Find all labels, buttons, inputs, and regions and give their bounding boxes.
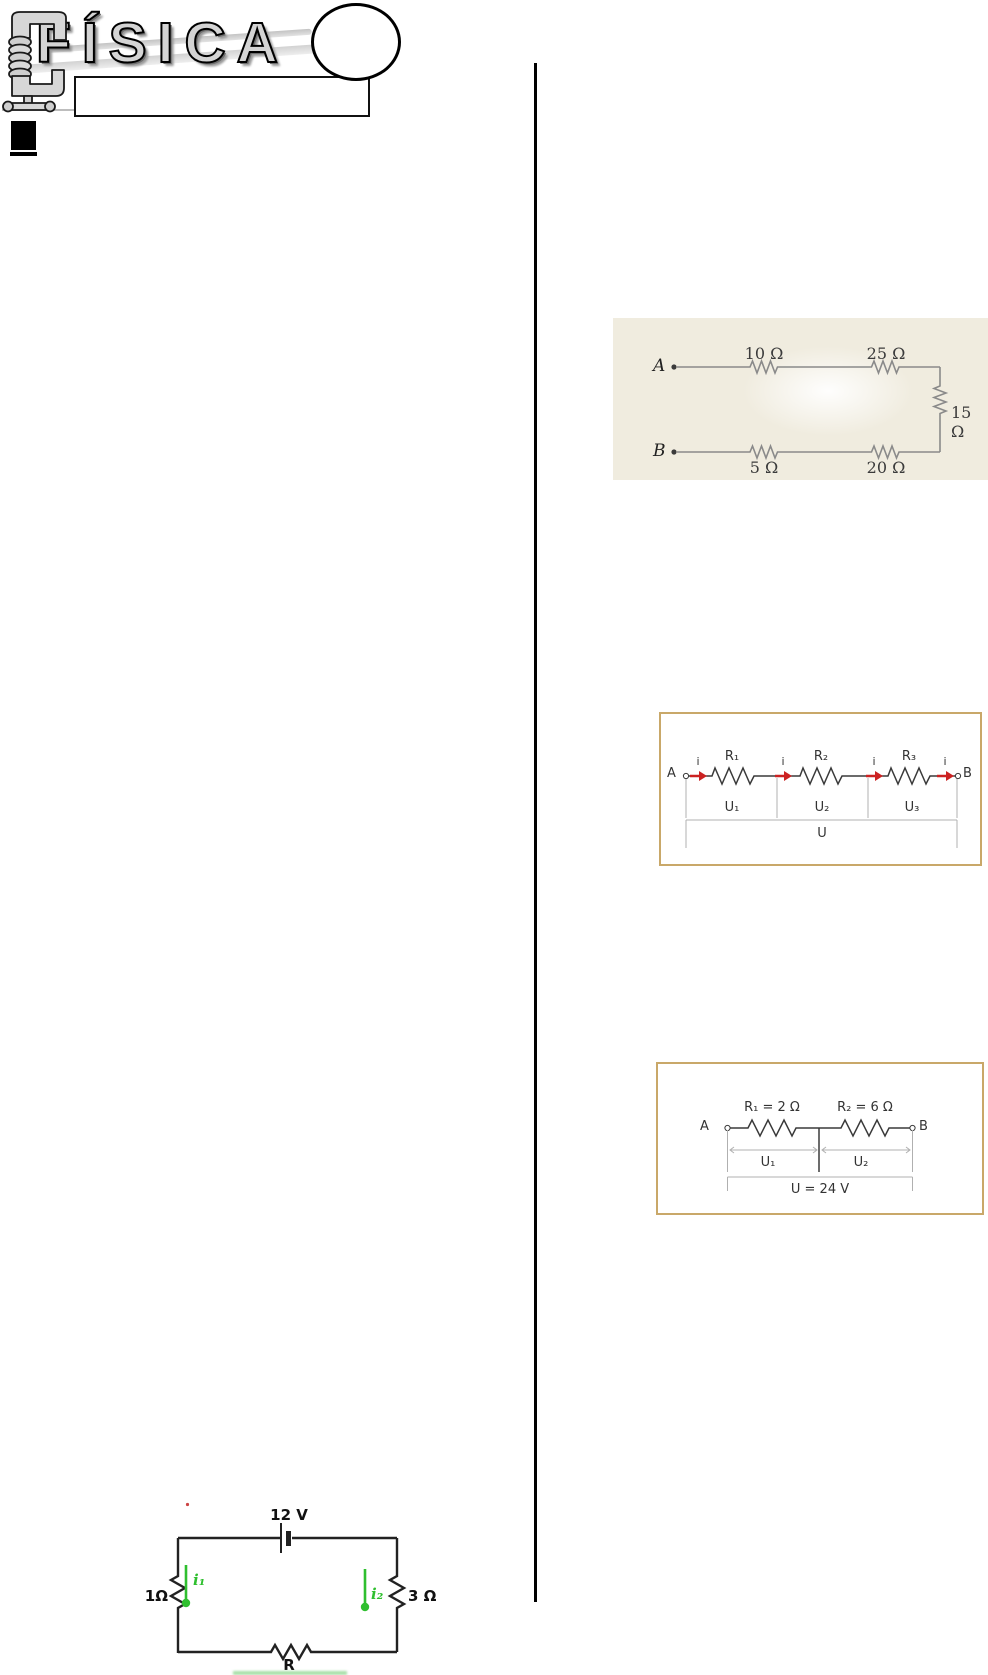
resistor-value-label: 25 Ω bbox=[846, 344, 926, 363]
resistor-value-label: 5 Ω bbox=[724, 458, 804, 477]
circuit-parallel-figure: A B 10 Ω 25 Ω 15 Ω 5 Ω 20 Ω bbox=[613, 318, 988, 480]
circuit-battery-figure: 12 V 1Ω 3 Ω i₁ i₂ R bbox=[140, 1495, 450, 1675]
resistor-value-label: 20 Ω bbox=[846, 458, 926, 477]
voltage-u3-label: U₃ bbox=[872, 800, 952, 815]
section-marker-square bbox=[11, 121, 36, 150]
resistor-r2-value-label: R₂ = 6 Ω bbox=[805, 1100, 925, 1115]
node-b-label: B bbox=[963, 766, 972, 781]
highlight-strip bbox=[233, 1671, 347, 1675]
circuit-series-figure: A B i i i i R₁ R₂ R₃ U₁ U₂ U₃ U bbox=[659, 712, 982, 866]
resistor-value-label: 10 Ω bbox=[724, 344, 804, 363]
node-a-label: A bbox=[667, 766, 676, 781]
circuit-series-values-figure: R₁ = 2 Ω R₂ = 6 Ω A B U₁ U₂ U = 24 V bbox=[656, 1062, 984, 1215]
battery-voltage-label: 12 V bbox=[249, 1506, 329, 1524]
resistor-r2-label: R₂ bbox=[791, 749, 851, 764]
logo-ellipse bbox=[311, 3, 401, 81]
voltage-u1-label: U₁ bbox=[692, 800, 772, 815]
current-i2-label: i₂ bbox=[371, 1585, 383, 1603]
node-b-label: B bbox=[653, 441, 666, 461]
worksheet-page: { "header": { "title": "FÍSICA" }, "circ… bbox=[0, 0, 988, 1675]
voltage-total-label: U = 24 V bbox=[760, 1182, 880, 1197]
circuit-series-wiring bbox=[661, 714, 980, 864]
node-b-label: B bbox=[919, 1119, 928, 1134]
node-a-label: A bbox=[653, 356, 665, 376]
header-title-box bbox=[74, 76, 370, 117]
voltage-u1-label: U₁ bbox=[728, 1155, 808, 1170]
voltage-u2-label: U₂ bbox=[782, 800, 862, 815]
voltage-total-label: U bbox=[782, 826, 862, 841]
clamp-icon bbox=[2, 6, 76, 116]
section-marker-underline bbox=[10, 152, 37, 156]
column-divider bbox=[534, 63, 537, 1602]
resistor-r3-label: R₃ bbox=[879, 749, 939, 764]
circuit-parallel-wiring bbox=[613, 318, 988, 480]
voltage-u2-label: U₂ bbox=[821, 1155, 901, 1170]
node-a-label: A bbox=[700, 1119, 709, 1134]
current-i1-label: i₁ bbox=[193, 1571, 205, 1589]
resistor-r1-label: R₁ bbox=[702, 749, 762, 764]
resistor-left-label: 1Ω bbox=[134, 1587, 168, 1605]
current-label: i bbox=[773, 755, 793, 768]
resistor-right-label: 3 Ω bbox=[408, 1587, 436, 1605]
resistor-value-label: 15 Ω bbox=[951, 403, 988, 441]
